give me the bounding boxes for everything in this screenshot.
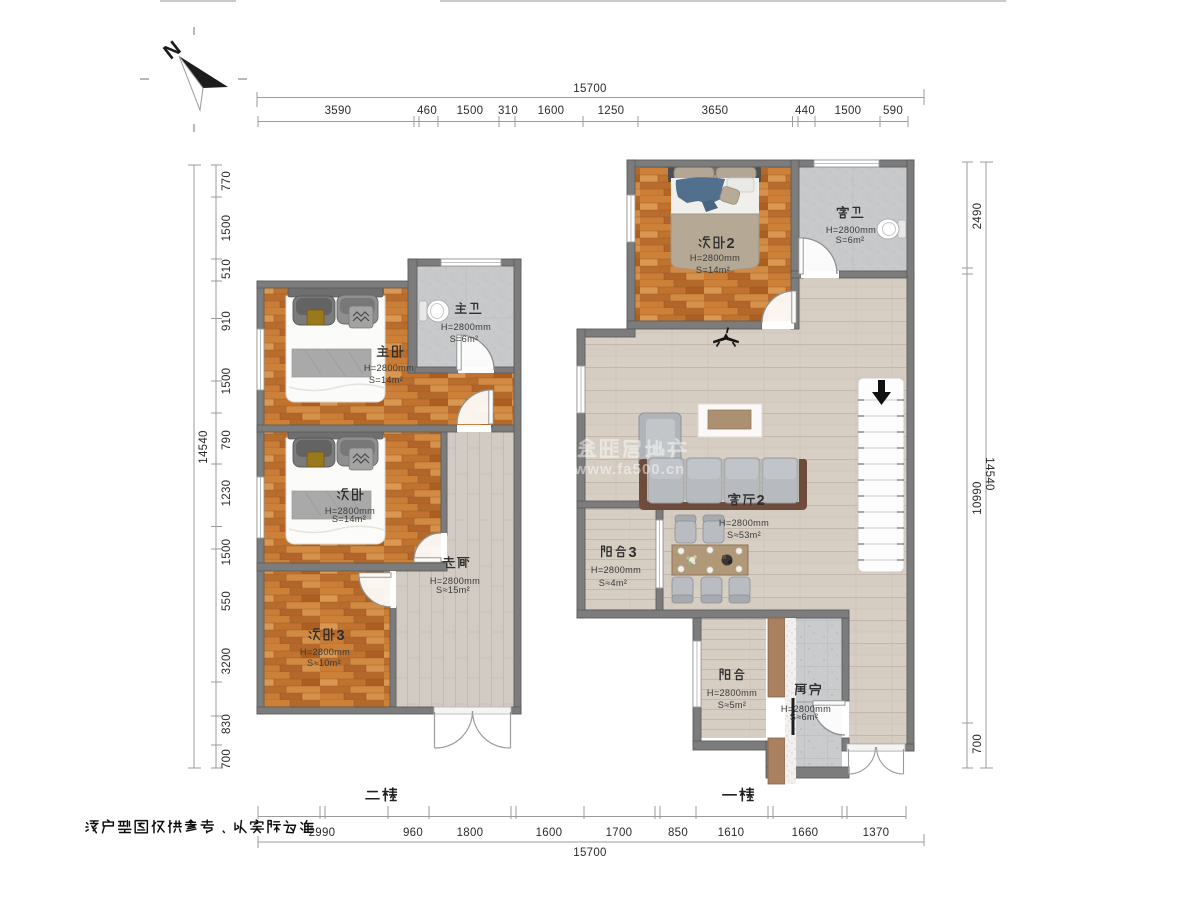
svg-text:3590: 3590 <box>325 105 352 117</box>
svg-text:S=6m²: S=6m² <box>450 334 479 344</box>
svg-text:770: 770 <box>221 171 233 191</box>
svg-text:550: 550 <box>221 591 233 611</box>
svg-text:700: 700 <box>972 734 984 754</box>
svg-text:H=2800mm: H=2800mm <box>300 647 350 657</box>
svg-text:S≈4m²: S≈4m² <box>599 578 628 588</box>
svg-text:S≈5m²: S≈5m² <box>718 700 747 710</box>
svg-text:H=2800mm: H=2800mm <box>826 225 876 235</box>
svg-text:S≈10m²: S≈10m² <box>307 658 341 668</box>
svg-text:2490: 2490 <box>972 203 984 230</box>
svg-text:1230: 1230 <box>221 480 233 507</box>
svg-text:1610: 1610 <box>718 827 745 839</box>
svg-text:1500: 1500 <box>221 215 233 242</box>
svg-text:S=14m²: S=14m² <box>369 375 403 385</box>
svg-text:15700: 15700 <box>573 847 606 859</box>
svg-text:1600: 1600 <box>536 827 563 839</box>
svg-text:14540: 14540 <box>198 430 210 463</box>
svg-text:H=2800mm: H=2800mm <box>591 565 641 575</box>
svg-text:830: 830 <box>221 714 233 734</box>
svg-text:S≈6m²: S≈6m² <box>790 712 819 722</box>
svg-text:3200: 3200 <box>221 648 233 675</box>
svg-text:510: 510 <box>221 259 233 279</box>
svg-text:S=6m²: S=6m² <box>836 235 865 245</box>
svg-text:3650: 3650 <box>702 105 729 117</box>
svg-text:960: 960 <box>403 827 423 839</box>
svg-text:310: 310 <box>498 105 518 117</box>
svg-text:www.fa500.cn: www.fa500.cn <box>574 461 686 478</box>
svg-text:1250: 1250 <box>598 105 625 117</box>
svg-text:S≈15m²: S≈15m² <box>436 585 470 595</box>
svg-text:1500: 1500 <box>221 539 233 566</box>
svg-text:700: 700 <box>221 749 233 769</box>
svg-text:10990: 10990 <box>972 481 984 514</box>
svg-text:590: 590 <box>883 105 903 117</box>
svg-text:1500: 1500 <box>835 105 862 117</box>
svg-text:3: 3 <box>628 545 636 561</box>
svg-text:790: 790 <box>221 430 233 450</box>
svg-text:H=2800mm: H=2800mm <box>364 363 414 373</box>
svg-text:910: 910 <box>221 311 233 331</box>
svg-text:2: 2 <box>756 493 764 509</box>
svg-text:S=14m²: S=14m² <box>332 514 366 524</box>
svg-text:1660: 1660 <box>792 827 819 839</box>
svg-text:14540: 14540 <box>983 457 995 490</box>
svg-text:H=2800mm: H=2800mm <box>690 253 740 263</box>
svg-text:H=2800mm: H=2800mm <box>707 688 757 698</box>
svg-text:3: 3 <box>336 628 344 644</box>
svg-text:1500: 1500 <box>457 105 484 117</box>
svg-text:850: 850 <box>668 827 688 839</box>
svg-text:H=2800mm: H=2800mm <box>719 518 769 528</box>
svg-text:1700: 1700 <box>606 827 633 839</box>
svg-text:S≈53m²: S≈53m² <box>727 530 761 540</box>
svg-text:1600: 1600 <box>538 105 565 117</box>
svg-text:440: 440 <box>795 105 815 117</box>
svg-text:H=2800mm: H=2800mm <box>441 322 491 332</box>
svg-text:15700: 15700 <box>573 83 606 95</box>
svg-text:460: 460 <box>417 105 437 117</box>
svg-text:1800: 1800 <box>457 827 484 839</box>
svg-text:1370: 1370 <box>863 827 890 839</box>
svg-text:S=14m²: S=14m² <box>696 265 730 275</box>
svg-text:1500: 1500 <box>221 368 233 395</box>
svg-text:2: 2 <box>726 236 734 252</box>
